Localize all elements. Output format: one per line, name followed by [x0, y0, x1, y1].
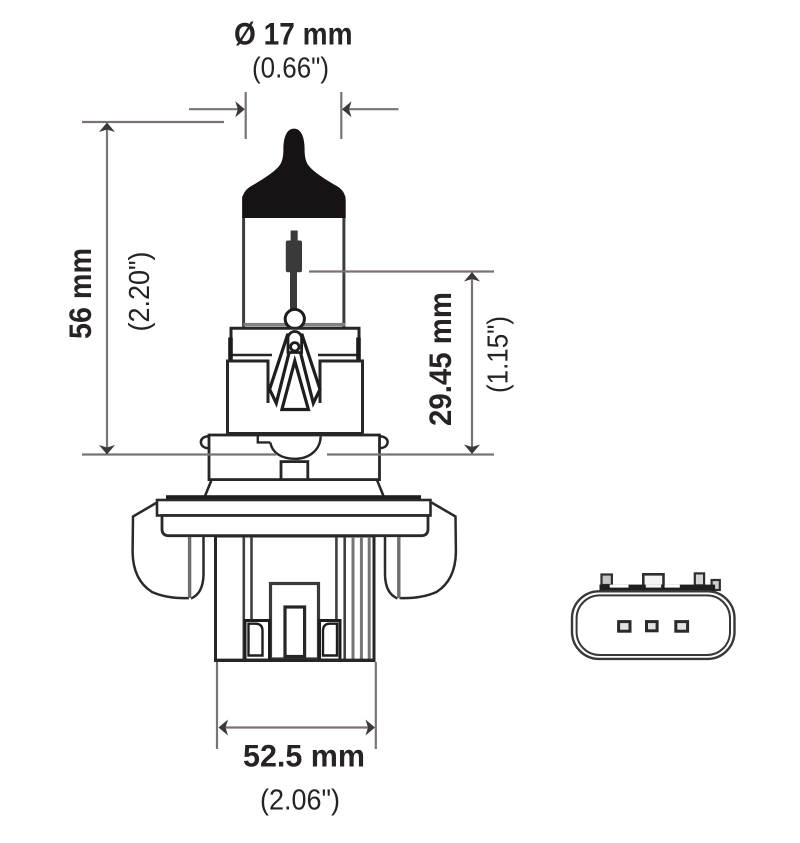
svg-text:56 mm: 56 mm	[62, 248, 98, 339]
svg-text:(1.15"): (1.15")	[483, 316, 515, 393]
svg-text:(0.66"): (0.66")	[252, 52, 329, 84]
svg-text:52.5 mm: 52.5 mm	[243, 738, 365, 774]
svg-text:29.45 mm: 29.45 mm	[422, 292, 458, 426]
svg-text:(2.20"): (2.20")	[124, 252, 156, 332]
svg-text:Ø 17 mm: Ø 17 mm	[234, 16, 353, 52]
svg-text:(2.06"): (2.06")	[260, 785, 340, 817]
